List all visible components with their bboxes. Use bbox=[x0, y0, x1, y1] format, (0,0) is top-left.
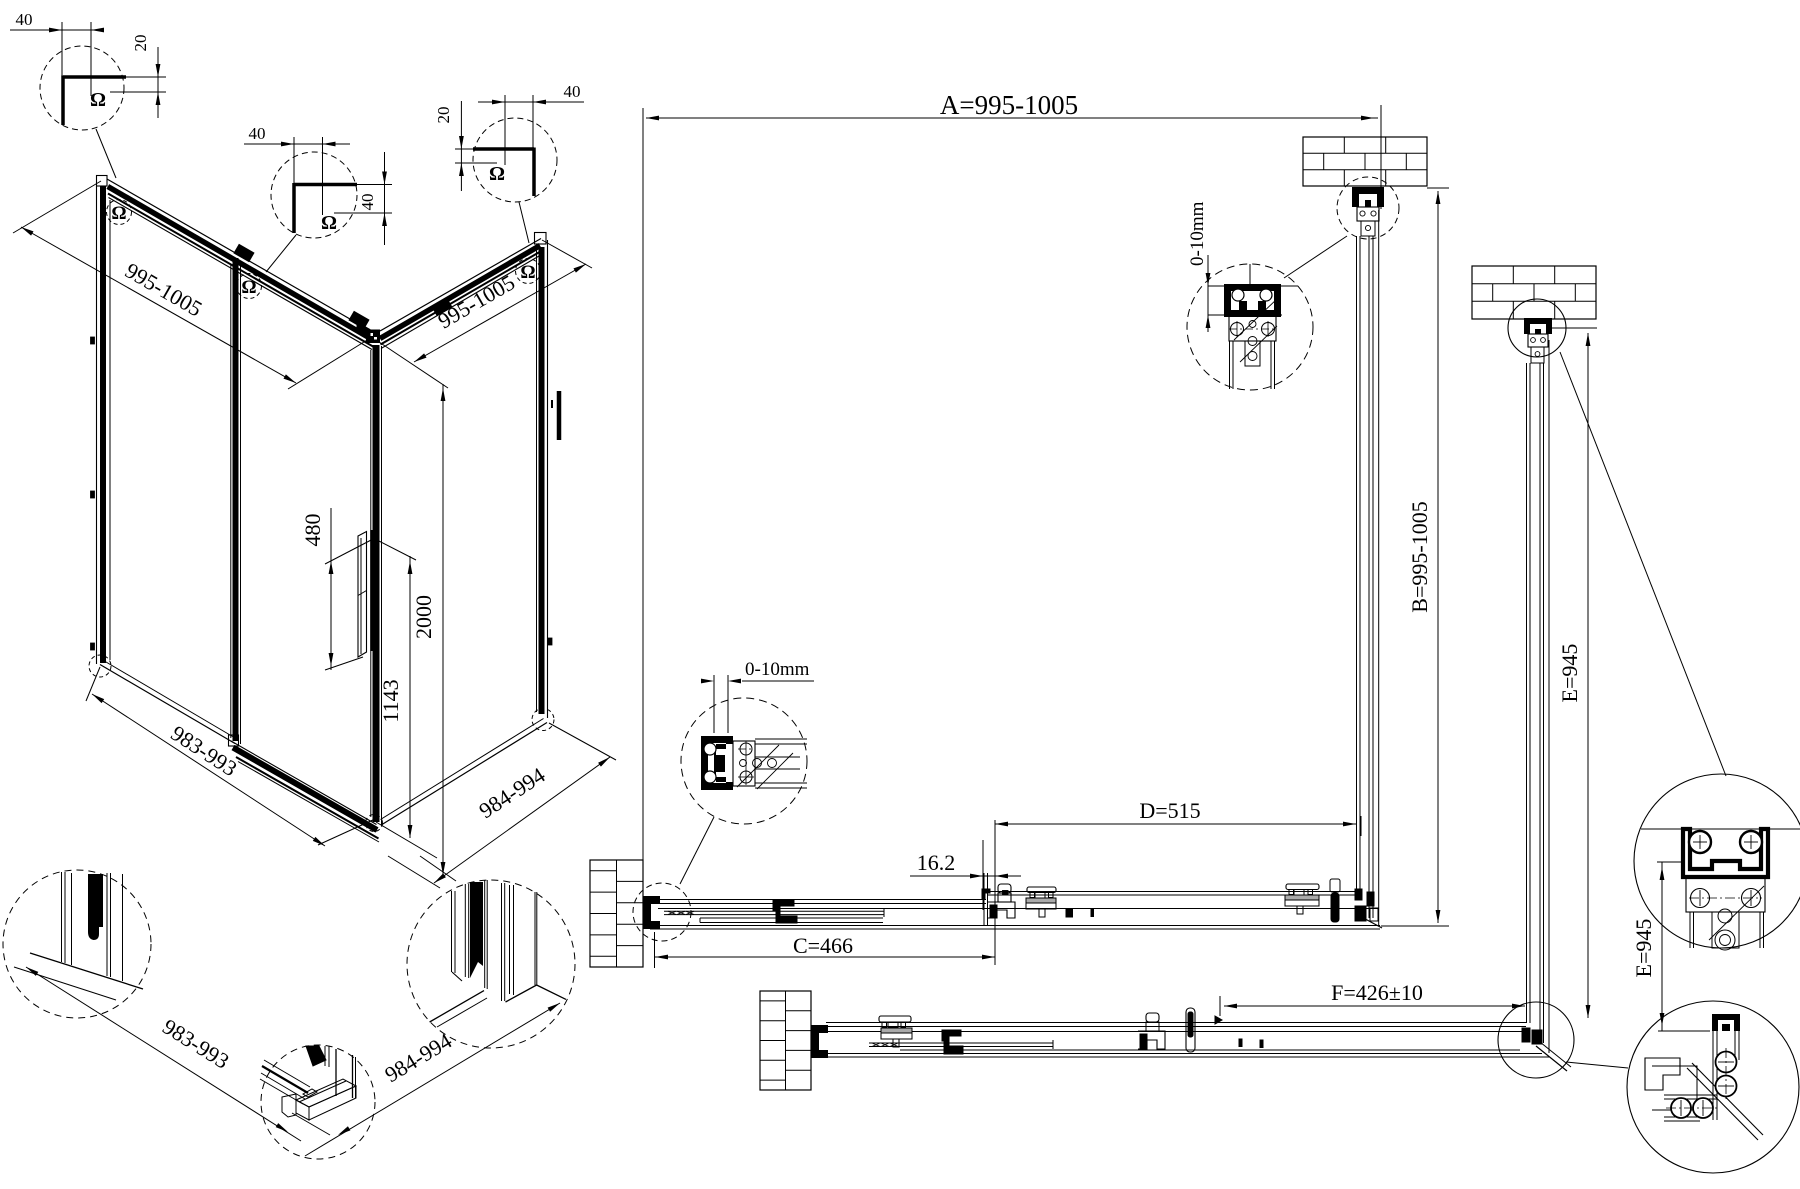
svg-text:Ω: Ω bbox=[111, 203, 126, 224]
svg-text:A=995-1005: A=995-1005 bbox=[940, 90, 1078, 120]
svg-text:D=515: D=515 bbox=[1139, 798, 1200, 823]
svg-text:E=945: E=945 bbox=[1557, 644, 1582, 703]
svg-text:40: 40 bbox=[249, 124, 266, 143]
svg-text:B=995-1005: B=995-1005 bbox=[1407, 501, 1432, 612]
svg-text:16.2: 16.2 bbox=[917, 850, 956, 875]
svg-text:E=945: E=945 bbox=[1631, 919, 1656, 978]
svg-text:20: 20 bbox=[131, 35, 150, 52]
svg-text:40: 40 bbox=[358, 194, 377, 211]
svg-text:Ω: Ω bbox=[520, 262, 535, 283]
svg-text:20: 20 bbox=[434, 107, 453, 124]
svg-text:Ω: Ω bbox=[241, 277, 256, 298]
svg-text:40: 40 bbox=[564, 82, 581, 101]
svg-text:Ω: Ω bbox=[489, 163, 505, 185]
svg-text:1143: 1143 bbox=[378, 679, 403, 722]
svg-text:Ω: Ω bbox=[90, 89, 106, 111]
svg-text:C=466: C=466 bbox=[793, 933, 853, 958]
svg-text:0-10mm: 0-10mm bbox=[745, 659, 810, 680]
svg-text:480: 480 bbox=[300, 514, 325, 547]
svg-text:Ω: Ω bbox=[321, 212, 337, 234]
svg-text:2000: 2000 bbox=[411, 595, 436, 639]
svg-text:0-10mm: 0-10mm bbox=[1187, 201, 1208, 266]
svg-text:40: 40 bbox=[16, 10, 33, 29]
svg-text:F=426±10: F=426±10 bbox=[1331, 980, 1423, 1005]
